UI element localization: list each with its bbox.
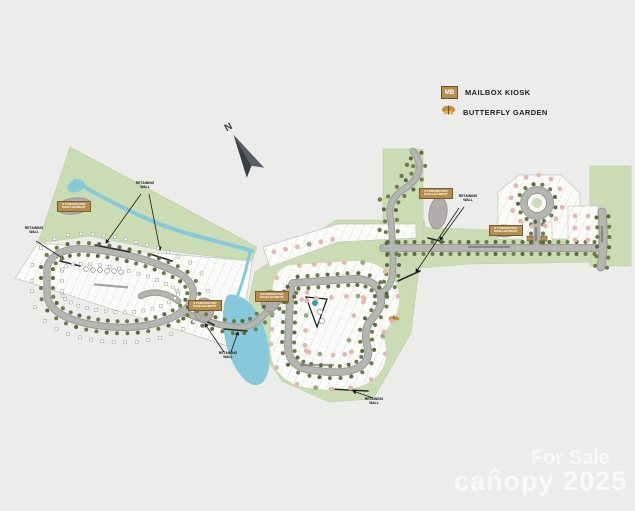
retaining-wall-label: RETAININGWALL — [16, 227, 52, 235]
legend-item-butterfly-garden: BUTTERFLY GARDEN — [441, 103, 548, 121]
site-plan-canvas: MB MAILBOX KIOSK BUTTERFLY GARDEN N STOR… — [0, 0, 635, 511]
legend-label: MAILBOX KIOSK — [465, 88, 531, 97]
stormwater-label: STORMWATERMANAGEMENT — [188, 300, 222, 311]
stormwater-label: STORMWATERMANAGEMENT — [57, 201, 91, 212]
site-map — [0, 0, 635, 511]
legend-label: BUTTERFLY GARDEN — [463, 108, 548, 117]
retaining-wall-label: RETAININGWALL — [127, 182, 163, 190]
stormwater-label: STORMWATERMANAGEMENT — [255, 291, 289, 302]
legend-item-mailbox-kiosk: MB MAILBOX KIOSK — [441, 86, 548, 99]
map-legend: MB MAILBOX KIOSK BUTTERFLY GARDEN — [441, 86, 548, 121]
retaining-wall-label: RETAININGWALL — [356, 398, 392, 406]
culdesac-island — [532, 198, 542, 208]
mailbox-kiosk-icon: MB — [441, 86, 458, 99]
selected-lot-dot — [312, 300, 318, 306]
stormwater-label: STORMWATERMANAGEMENT — [419, 188, 453, 199]
butterfly-icon — [441, 103, 456, 121]
retaining-wall-label: RETAININGWALL — [450, 195, 486, 203]
retaining-wall-label: RETAININGWALL — [210, 352, 246, 360]
north-arrow-icon — [225, 130, 264, 178]
stormwater-label: STORMWATERMANAGEMENT — [489, 225, 523, 236]
